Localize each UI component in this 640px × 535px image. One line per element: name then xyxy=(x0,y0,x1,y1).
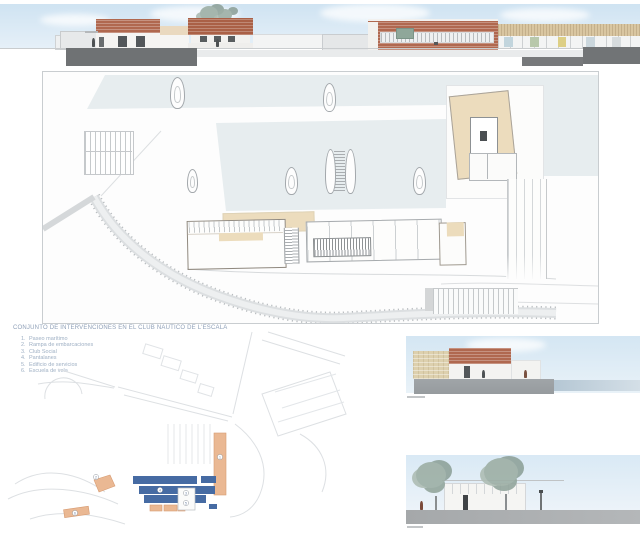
canopy xyxy=(85,31,98,33)
svg-text:5: 5 xyxy=(185,501,187,505)
ground-strip xyxy=(197,50,583,57)
caption-mark xyxy=(407,396,425,398)
boat xyxy=(323,83,336,112)
white-pier xyxy=(368,22,378,50)
small-rooms xyxy=(189,220,282,233)
brick-building xyxy=(449,348,511,364)
svg-text:2: 2 xyxy=(95,475,97,479)
promenade-elevation-panel xyxy=(406,452,640,528)
club-annex xyxy=(469,153,517,181)
svg-text:1: 1 xyxy=(219,455,221,459)
services-building xyxy=(182,204,473,272)
parking-lot xyxy=(433,288,518,314)
boat xyxy=(170,77,185,109)
mast-pole xyxy=(540,492,542,510)
boat xyxy=(187,169,198,193)
location-plan-drawing: 1 2 3 4 5 6 xyxy=(0,322,350,535)
svg-text:3: 3 xyxy=(185,491,187,495)
window xyxy=(136,36,145,47)
stair xyxy=(284,228,300,264)
quay-wall xyxy=(414,379,554,394)
door xyxy=(99,37,104,47)
intervention-building xyxy=(164,505,177,511)
brick-building xyxy=(188,18,253,35)
boat xyxy=(413,167,426,195)
marina-pontoons xyxy=(133,476,217,509)
quay-wall-dark xyxy=(522,57,583,66)
boat xyxy=(345,149,356,194)
doorway xyxy=(464,366,470,378)
svg-text:4: 4 xyxy=(159,488,161,492)
person-figure xyxy=(482,370,485,378)
person-figure xyxy=(420,501,423,510)
person-figure xyxy=(92,38,95,47)
boat xyxy=(285,167,298,195)
window xyxy=(228,36,235,42)
cloud xyxy=(500,8,590,22)
kitchen-band xyxy=(219,232,263,241)
top-elevation-panel xyxy=(0,0,640,70)
svg-text:6: 6 xyxy=(74,511,76,515)
quay-base xyxy=(406,510,640,524)
parking-divider xyxy=(84,151,132,152)
color-panel xyxy=(530,37,539,47)
presentation-sheet: CONJUNTO DE INTERVENCIONES EN EL CLUB NA… xyxy=(0,0,640,535)
low-sheds xyxy=(253,34,322,49)
parking-lot xyxy=(84,131,134,175)
tree xyxy=(416,462,446,488)
pier-fade xyxy=(506,255,546,281)
quay-wall-dark xyxy=(583,47,640,64)
color-panel xyxy=(586,37,595,47)
link-building-band xyxy=(160,26,189,35)
tree xyxy=(484,458,518,486)
vent xyxy=(434,42,438,45)
green-window xyxy=(396,28,414,39)
brick-building xyxy=(96,19,160,33)
sandstone-wall xyxy=(413,351,449,379)
stair-core xyxy=(480,131,487,141)
annex-partition xyxy=(487,153,488,179)
white-wall xyxy=(449,364,511,379)
intervention-building xyxy=(150,505,162,511)
mast-cap xyxy=(539,490,543,493)
person-figure xyxy=(216,39,219,47)
color-panel xyxy=(558,37,566,47)
window xyxy=(118,36,127,47)
east-cap-roof xyxy=(447,222,464,236)
doorway xyxy=(463,495,468,510)
link-building xyxy=(160,35,189,48)
location-plan-panel: CONJUNTO DE INTERVENCIONES EN EL CLUB NA… xyxy=(0,322,350,535)
boat xyxy=(325,149,336,194)
harbour-elevation-panel xyxy=(406,336,640,400)
person-figure xyxy=(524,370,527,378)
timber-band-building xyxy=(498,24,640,36)
intervention-breakwater xyxy=(214,433,226,495)
window xyxy=(200,36,207,42)
quay-wall-dark xyxy=(66,48,197,66)
color-panel xyxy=(504,37,513,47)
color-panel xyxy=(612,37,621,47)
caption-mark xyxy=(407,526,423,528)
building-base xyxy=(96,33,160,48)
parapet-edge xyxy=(368,19,498,21)
slipway-rails xyxy=(313,237,371,257)
main-site-plan xyxy=(42,71,599,324)
pontoon-pair xyxy=(325,149,354,193)
sea-water xyxy=(554,380,640,391)
glazing xyxy=(444,483,524,494)
